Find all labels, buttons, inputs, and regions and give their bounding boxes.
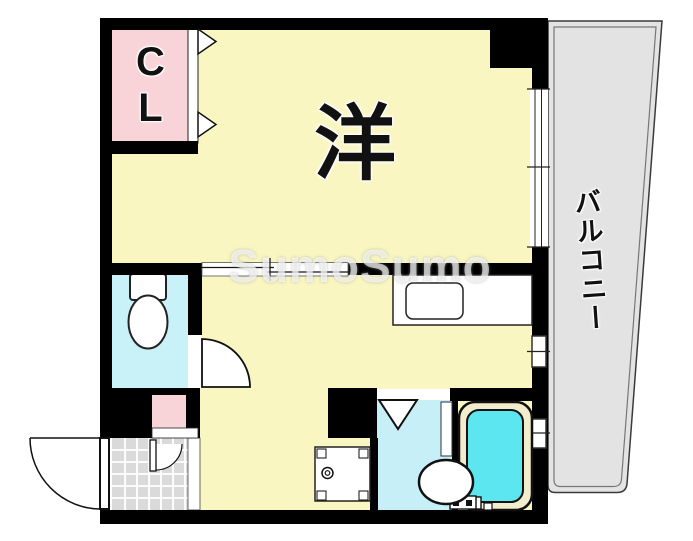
wall-bottom: [100, 510, 548, 524]
balcony-window: [527, 89, 550, 247]
wall-bath-top: [458, 388, 532, 401]
closet-floor: [112, 28, 188, 143]
wall-toilet-right: [188, 263, 202, 335]
entrance-door: [30, 438, 109, 509]
pan-corner-tl: [317, 449, 326, 458]
bathtub-water: [467, 410, 523, 502]
washbasin-bowl: [419, 460, 473, 504]
pan-corner-tr: [359, 449, 368, 458]
toilet-bowl: [129, 296, 168, 349]
floorplan: CL 洋 バルコニー SumoSumo: [0, 0, 693, 541]
washbasin-tap-right: [466, 500, 472, 506]
entrance-door-swing-fill: [30, 438, 101, 509]
wall-pillar-topright: [490, 18, 548, 68]
closet: [112, 28, 198, 143]
floorplan-drawing: [0, 0, 693, 541]
wall-block-washroom: [328, 388, 377, 438]
sliding-door-track: [202, 263, 348, 277]
toilet-door-opening: [188, 335, 202, 388]
balcony-window-glass: [530, 89, 548, 247]
balcony-outline: [548, 21, 662, 493]
closet-door-track: [188, 28, 198, 143]
entrance-step: [188, 438, 200, 510]
washroom-door-opening: [377, 389, 450, 400]
hall-door-opening: [152, 428, 198, 438]
pan-drain-outer: [322, 468, 333, 479]
wall-closet-bottom: [100, 141, 198, 154]
bath-door-panel: [441, 402, 452, 456]
pan-corner-br: [359, 491, 368, 500]
hall-door-leaf: [150, 440, 156, 471]
balcony-area: [548, 21, 662, 493]
bath-faucet-spout: [484, 503, 492, 510]
wall-washroom-left: [370, 438, 378, 510]
wall-left: [100, 18, 112, 438]
entrance-door-leaf: [100, 438, 109, 509]
kitchen-sink: [406, 283, 463, 319]
shoe-cabinet: [152, 395, 186, 428]
kitchen: [393, 275, 532, 325]
wall-divider-left: [112, 263, 190, 275]
washing-machine-pan: [315, 447, 370, 501]
wall-divider-right: [348, 263, 532, 275]
wall-top: [100, 18, 548, 30]
toilet-room: [112, 274, 188, 388]
pan-corner-bl: [317, 491, 326, 500]
